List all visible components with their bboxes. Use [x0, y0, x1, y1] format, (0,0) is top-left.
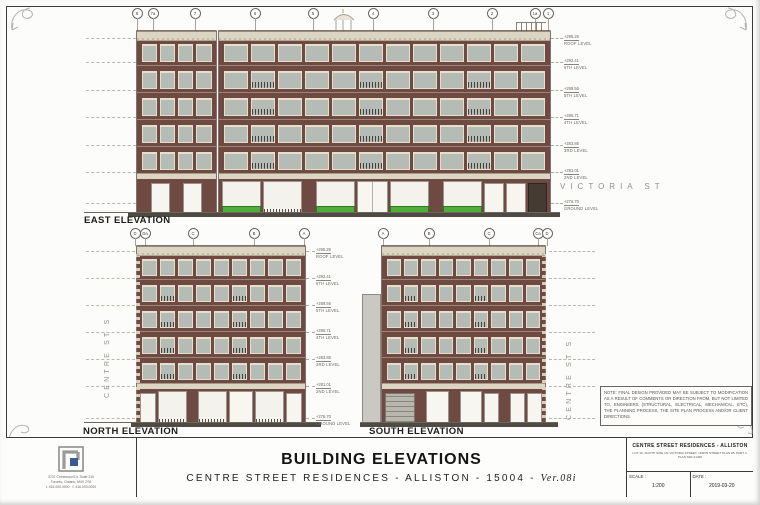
grid-bubble: 3 — [428, 8, 439, 19]
firm-address-line: t. 416.000.0000 · f. 416.000.0000 — [46, 485, 96, 490]
ground-floor — [382, 389, 545, 423]
window — [439, 363, 453, 381]
lot-description: LOT 10, SOUTH SIDE OF VICTORIA STREET, U… — [627, 449, 753, 471]
window — [439, 337, 453, 355]
window — [251, 71, 275, 89]
window — [521, 71, 545, 89]
window — [387, 259, 401, 277]
window — [250, 337, 265, 355]
window — [521, 152, 545, 170]
level-dashline — [86, 418, 135, 419]
window — [509, 285, 523, 303]
level-dashline — [86, 251, 135, 252]
window — [178, 311, 193, 329]
window — [224, 44, 248, 62]
window — [491, 311, 505, 329]
storefront-bay-door — [229, 391, 253, 423]
window — [467, 44, 491, 62]
facade-floor — [382, 358, 545, 384]
window — [178, 259, 193, 277]
facade-floor — [219, 120, 550, 147]
window — [421, 311, 435, 329]
storefront-bay-pier — [451, 391, 458, 423]
grid-bubble: 4 — [368, 8, 379, 19]
facade-floor — [382, 280, 545, 306]
project-title-line: CENTRE STREET RESIDENCES - ALLISTON - 15… — [186, 473, 576, 484]
window — [404, 311, 418, 329]
storefront-bay-pier — [140, 181, 149, 213]
facade-floor — [219, 93, 550, 120]
window — [332, 125, 356, 143]
window — [214, 285, 229, 303]
storefront-bay-open — [183, 183, 202, 213]
window — [142, 98, 157, 116]
level-dashlines-south-right — [549, 0, 595, 505]
window — [467, 125, 491, 143]
window — [160, 259, 175, 277]
window — [421, 337, 435, 355]
window — [160, 98, 175, 116]
date-value: 2019-03-20 — [693, 483, 752, 489]
window — [491, 285, 505, 303]
storefront-bay-door — [460, 391, 483, 423]
title-block: 3737 Chinewood Dr. Suite 210 Toronto, On… — [6, 437, 753, 497]
window — [160, 337, 175, 355]
window — [286, 285, 301, 303]
window — [251, 44, 275, 62]
window — [359, 125, 383, 143]
storefront-bay-glass-green — [316, 181, 355, 213]
window — [232, 337, 247, 355]
window — [278, 71, 302, 89]
level-dashline — [549, 251, 595, 252]
window — [456, 311, 470, 329]
level-label: +289.565TH LEVEL — [316, 301, 362, 313]
window — [224, 125, 248, 143]
revision-note: NOTE: FINAL DESIGN PROVIDED MAY BE SUBJE… — [600, 386, 752, 426]
window — [332, 98, 356, 116]
window — [305, 152, 329, 170]
window — [250, 363, 265, 381]
storefront-bay-open — [510, 393, 525, 423]
window — [439, 285, 453, 303]
window — [160, 71, 175, 89]
grid-bubble: 1a — [530, 8, 541, 19]
window — [196, 311, 211, 329]
storefront-bay-glass — [263, 181, 302, 213]
window — [387, 285, 401, 303]
storefront-bay-pier — [304, 181, 314, 213]
window — [232, 285, 247, 303]
window — [387, 311, 401, 329]
grid-bubble: B — [249, 228, 260, 239]
storefront-bay-pier — [189, 391, 196, 423]
window — [142, 311, 157, 329]
window — [196, 337, 211, 355]
level-dashline — [86, 278, 135, 279]
level-label: +292.416TH LEVEL — [316, 274, 362, 286]
window — [359, 71, 383, 89]
window — [160, 311, 175, 329]
level-dashline — [549, 278, 595, 279]
level-dashline — [549, 332, 595, 333]
window — [224, 152, 248, 170]
window — [440, 152, 464, 170]
window — [268, 363, 283, 381]
window — [268, 337, 283, 355]
facade-floor — [137, 120, 216, 147]
level-value: +281.01 — [316, 382, 331, 389]
window — [421, 259, 435, 277]
ground-floor — [137, 179, 216, 213]
level-name: 2ND LEVEL — [316, 389, 362, 394]
window — [494, 44, 518, 62]
window — [142, 285, 157, 303]
window — [214, 259, 229, 277]
window — [521, 98, 545, 116]
level-value: +292.41 — [316, 274, 331, 281]
storefront-bay-glass-green — [443, 181, 482, 213]
window — [521, 44, 545, 62]
window — [196, 152, 211, 170]
street-label-centre-south: CENTRE ST S — [566, 339, 573, 420]
level-name: 5TH LEVEL — [316, 308, 362, 313]
window — [491, 259, 505, 277]
grid-bubble: Ca — [533, 228, 544, 239]
level-label: +281.012ND LEVEL — [316, 382, 362, 394]
window — [232, 363, 247, 381]
window — [286, 311, 301, 329]
window — [142, 152, 157, 170]
grid-bubble: 5 — [308, 8, 319, 19]
window — [491, 337, 505, 355]
window — [286, 337, 301, 355]
window — [491, 363, 505, 381]
facade-floor — [137, 254, 305, 280]
window — [160, 44, 175, 62]
window — [305, 71, 329, 89]
window — [142, 44, 157, 62]
window — [413, 98, 437, 116]
window — [440, 98, 464, 116]
level-name: 3RD LEVEL — [316, 362, 362, 367]
window — [439, 259, 453, 277]
window — [456, 259, 470, 277]
window — [224, 71, 248, 89]
facade-floor — [137, 147, 216, 174]
window — [359, 44, 383, 62]
storefront-bay-door — [426, 391, 449, 423]
facade-floors — [382, 254, 545, 384]
ground-floor — [219, 179, 550, 213]
level-dashline — [549, 305, 595, 306]
window — [474, 311, 488, 329]
version-tag: Ver.08i — [541, 473, 577, 484]
window — [305, 98, 329, 116]
window — [404, 337, 418, 355]
window — [178, 363, 193, 381]
window — [359, 152, 383, 170]
facade-floor — [382, 332, 545, 358]
level-label: +295.26ROOF LEVEL — [316, 247, 362, 259]
window — [413, 71, 437, 89]
window — [178, 71, 193, 89]
corner-flourish-icon — [716, 4, 750, 36]
facade-floor — [137, 306, 305, 332]
window — [268, 259, 283, 277]
window — [332, 44, 356, 62]
window — [278, 98, 302, 116]
window — [142, 363, 157, 381]
window — [142, 125, 157, 143]
window — [178, 125, 193, 143]
facade-floor — [137, 93, 216, 120]
window — [232, 259, 247, 277]
window — [509, 337, 523, 355]
project-info-cell: CENTRE STREET RESIDENCES - ALLISTON LOT … — [626, 438, 753, 497]
level-name: 6TH LEVEL — [316, 281, 362, 286]
window — [214, 311, 229, 329]
window — [509, 259, 523, 277]
storefront-bay-glass — [198, 391, 227, 423]
scale-date-row: SCALE : 1:200 DATE : 2019-03-20 — [627, 471, 753, 497]
level-label: +276.70GROUND LEVEL — [316, 414, 362, 426]
window — [232, 311, 247, 329]
window — [278, 152, 302, 170]
window — [278, 125, 302, 143]
window — [387, 363, 401, 381]
window — [440, 71, 464, 89]
window — [305, 125, 329, 143]
rooftop-cupola — [330, 7, 358, 33]
window — [440, 44, 464, 62]
window — [494, 71, 518, 89]
window — [196, 98, 211, 116]
window — [286, 363, 301, 381]
storefront-bay-dark — [528, 183, 547, 213]
window — [509, 311, 523, 329]
window — [286, 259, 301, 277]
storefront-bay-open — [151, 183, 170, 213]
east-elevation-main-block — [219, 31, 550, 213]
window — [526, 259, 540, 277]
level-name: GROUND LEVEL — [316, 421, 362, 426]
storefront-bay-glass — [255, 391, 284, 423]
east-elevation-left-wing — [137, 31, 216, 213]
level-name: ROOF LEVEL — [316, 254, 362, 259]
window — [250, 311, 265, 329]
elevation-title-south: SOUTH ELEVATION — [369, 426, 464, 437]
adjacent-building-outline — [362, 294, 381, 423]
storefront-bay-door — [357, 181, 388, 213]
grid-bubble: 6 — [250, 8, 261, 19]
window — [509, 363, 523, 381]
storefront-bay-open — [484, 393, 499, 423]
facade-floor — [219, 39, 550, 66]
window — [386, 71, 410, 89]
level-value: +276.70 — [316, 414, 331, 421]
window — [456, 285, 470, 303]
window — [413, 44, 437, 62]
facade-floors — [137, 39, 216, 174]
date-label: DATE : — [693, 474, 752, 479]
storefront-bay-open — [140, 393, 156, 423]
window — [359, 98, 383, 116]
window — [456, 363, 470, 381]
window — [332, 71, 356, 89]
window — [224, 98, 248, 116]
grid-bubble: Da — [140, 228, 151, 239]
window — [196, 363, 211, 381]
storefront-bay-open — [506, 183, 526, 213]
window — [386, 125, 410, 143]
window — [160, 285, 175, 303]
window — [474, 363, 488, 381]
facade-floor — [137, 332, 305, 358]
window — [404, 363, 418, 381]
firm-address: 3737 Chinewood Dr. Suite 210 Toronto, On… — [46, 475, 96, 490]
window — [404, 259, 418, 277]
window — [421, 285, 435, 303]
window — [386, 98, 410, 116]
window — [526, 363, 540, 381]
level-name: 4TH LEVEL — [316, 335, 362, 340]
storefront-bay-pier — [204, 181, 213, 213]
storefront-bay-pier — [501, 391, 508, 423]
storefront-bay-garage — [385, 393, 415, 423]
window — [214, 337, 229, 355]
grid-bubble: A — [378, 228, 389, 239]
window — [160, 363, 175, 381]
scale-cell: SCALE : 1:200 — [627, 472, 690, 497]
storefront-bay-pier — [417, 391, 424, 423]
storefront-bay-glass-green — [390, 181, 429, 213]
window — [142, 71, 157, 89]
window — [178, 152, 193, 170]
storefront-bay-open — [527, 393, 542, 423]
window — [474, 259, 488, 277]
window — [160, 152, 175, 170]
window — [386, 152, 410, 170]
window — [413, 125, 437, 143]
grid-bubble: 7 — [190, 8, 201, 19]
window — [526, 311, 540, 329]
facade-floor — [137, 280, 305, 306]
window — [521, 125, 545, 143]
level-label: +286.714TH LEVEL — [316, 328, 362, 340]
level-label: +283.863RD LEVEL — [316, 355, 362, 367]
grid-bubble: C — [188, 228, 199, 239]
storefront-bay-glass — [158, 391, 187, 423]
sheet-title-cell: BUILDING ELEVATIONS CENTRE STREET RESIDE… — [136, 438, 626, 497]
street-label-centre-north: CENTRE ST S — [104, 317, 111, 398]
window — [196, 259, 211, 277]
window — [474, 285, 488, 303]
window — [526, 337, 540, 355]
grid-bubble: 7a — [148, 8, 159, 19]
window — [305, 44, 329, 62]
facade-floor — [137, 39, 216, 66]
window — [332, 152, 356, 170]
storefront-bay-open — [484, 183, 504, 213]
window — [387, 337, 401, 355]
window — [142, 337, 157, 355]
window — [421, 363, 435, 381]
window — [214, 363, 229, 381]
facade-floors — [219, 39, 550, 174]
date-cell: DATE : 2019-03-20 — [690, 472, 754, 497]
scale-label: SCALE : — [629, 474, 688, 479]
window — [494, 125, 518, 143]
window — [250, 285, 265, 303]
window — [251, 125, 275, 143]
window — [467, 152, 491, 170]
window — [178, 44, 193, 62]
south-elevation-block — [382, 246, 545, 423]
level-value: +289.56 — [316, 301, 331, 308]
storefront-bay-pier — [431, 181, 441, 213]
window — [467, 98, 491, 116]
facade-floor — [219, 147, 550, 174]
firm-logo — [57, 445, 85, 473]
window — [178, 337, 193, 355]
corner-flourish-icon — [8, 4, 42, 36]
ground-floor — [137, 389, 305, 423]
window — [386, 44, 410, 62]
window — [196, 285, 211, 303]
facade-floor — [219, 66, 550, 93]
grid-bubble: B — [424, 228, 435, 239]
level-value: +295.26 — [316, 247, 331, 254]
facade-floor — [382, 306, 545, 332]
window — [196, 125, 211, 143]
storefront-bay-open — [286, 393, 302, 423]
storefront-bay-pier — [172, 181, 181, 213]
facade-floors — [137, 254, 305, 384]
window — [268, 285, 283, 303]
window — [456, 337, 470, 355]
window — [413, 152, 437, 170]
level-value: +283.86 — [316, 355, 331, 362]
window — [494, 98, 518, 116]
window — [268, 311, 283, 329]
window — [278, 44, 302, 62]
window — [178, 98, 193, 116]
facade-floor — [382, 254, 545, 280]
window — [526, 285, 540, 303]
window — [196, 71, 211, 89]
level-value: +286.71 — [316, 328, 331, 335]
ground-line — [128, 212, 560, 217]
storefront-bay-glass-green — [222, 181, 261, 213]
project-subtitle: CENTRE STREET RESIDENCES - ALLISTON - 15… — [186, 473, 535, 484]
window — [474, 337, 488, 355]
window — [440, 125, 464, 143]
grid-bubble: A — [299, 228, 310, 239]
window — [178, 285, 193, 303]
window — [160, 125, 175, 143]
firm-identity-cell: 3737 Chinewood Dr. Suite 210 Toronto, On… — [6, 438, 136, 497]
level-dashline — [86, 305, 135, 306]
window — [439, 311, 453, 329]
facade-floor — [137, 358, 305, 384]
grid-bubble: C — [484, 228, 495, 239]
grid-bubble: 2 — [487, 8, 498, 19]
window — [251, 152, 275, 170]
drawing-sheet: 87a7654321a1 +295.26ROOF LEVEL+292.416TH… — [0, 0, 760, 505]
window — [250, 259, 265, 277]
facade-floor — [137, 66, 216, 93]
